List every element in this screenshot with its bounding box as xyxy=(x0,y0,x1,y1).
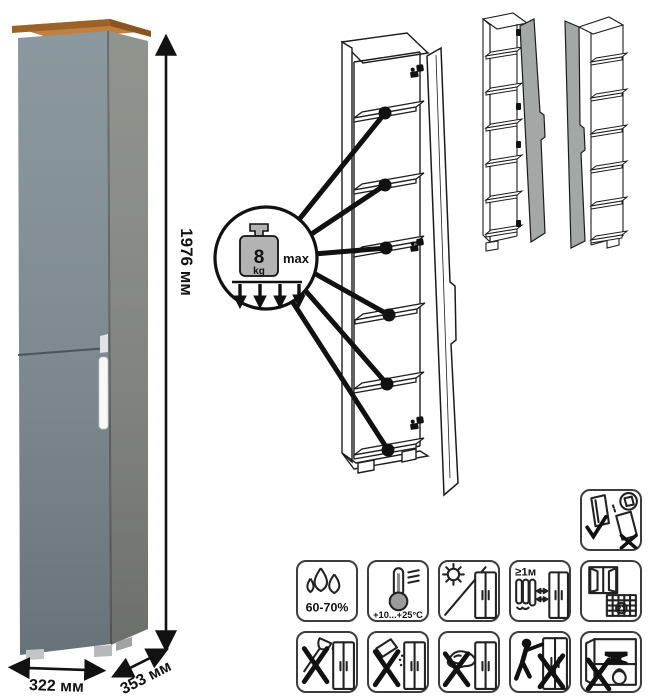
depth-dimension: 353 мм xyxy=(114,650,174,698)
door-storage-upright-icon xyxy=(580,489,642,551)
no-heavy-items-icon xyxy=(580,631,642,693)
kettlebell-icon xyxy=(613,669,626,684)
heat-source-distance-icon: ≥1м xyxy=(509,560,571,622)
height-label: 1976 мм xyxy=(177,228,196,296)
humidity-icon: 60-70% xyxy=(296,560,358,622)
door-handle xyxy=(99,357,108,429)
max-label: max xyxy=(283,251,310,266)
detail-magnifier xyxy=(620,493,637,510)
depth-label: 353 мм xyxy=(118,658,175,698)
max-weight-unit: kg xyxy=(253,266,265,277)
door-variants xyxy=(470,0,648,260)
calendar-day-label: 21 xyxy=(617,604,626,613)
no-sharp-tools-icon xyxy=(296,631,358,693)
wardrobe-glyph xyxy=(549,572,568,618)
gray-door-left xyxy=(565,21,585,248)
calendar-icon: 21 xyxy=(607,595,636,616)
wardrobe-glyph xyxy=(475,572,496,618)
height-dimension: 1976 мм xyxy=(166,37,196,649)
variant-door-left xyxy=(565,17,627,248)
side-panel xyxy=(108,31,148,645)
handle-notch xyxy=(100,334,108,353)
cabinet-photo-render: 1976 мм 322 мм 353 мм xyxy=(0,0,220,700)
front-door xyxy=(18,31,111,655)
ventilation-acclimatization-icon: 21 xyxy=(580,560,642,622)
no-wet-cloth-icon xyxy=(438,631,500,693)
sun-icon xyxy=(448,569,459,580)
open-window-icon xyxy=(589,567,617,593)
temperature-label: +10...+25°C xyxy=(373,610,423,620)
person-figure xyxy=(516,639,542,679)
no-dragging-icon xyxy=(509,631,571,693)
no-abrasive-cleaners-icon xyxy=(367,631,429,693)
technical-drawing: 8 kg max xyxy=(210,0,490,520)
max-weight-value: 8 xyxy=(254,247,265,268)
product-diagram-page: 1976 мм 322 мм 353 мм xyxy=(0,0,648,700)
variant-door-right xyxy=(483,13,545,251)
no-direct-sunlight-icon xyxy=(438,560,500,622)
max-load-callout: 8 kg max xyxy=(215,207,317,309)
width-label: 322 мм xyxy=(29,677,84,696)
shelves xyxy=(354,101,425,459)
x-mark xyxy=(375,652,398,685)
wardrobe-glyph xyxy=(404,642,425,689)
double-arrows xyxy=(537,589,547,601)
distance-label: ≥1м xyxy=(515,566,536,578)
radiator-icon xyxy=(516,580,535,610)
wardrobe-glyph xyxy=(333,642,354,689)
wardrobe-glyph xyxy=(475,642,496,689)
width-dimension: 322 мм xyxy=(10,667,103,696)
shelf-load-points xyxy=(379,107,396,457)
temperature-range-icon: +10...+25°C xyxy=(367,560,429,622)
open-door xyxy=(427,48,458,495)
gray-door-right xyxy=(520,19,545,242)
humidity-label: 60-70% xyxy=(306,601,349,615)
